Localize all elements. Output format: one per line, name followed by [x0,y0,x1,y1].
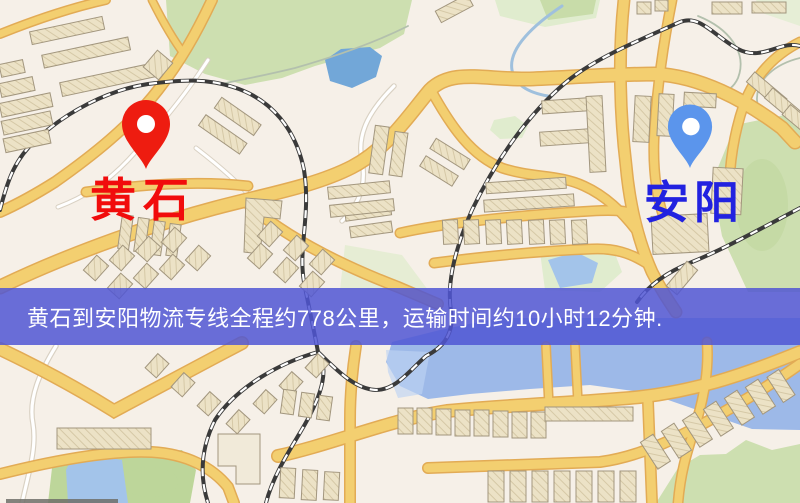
map-viewport[interactable]: 黄石 安阳 黄石到安阳物流专线全程约778公里，运输时间约10小时12分钟. [0,0,800,503]
origin-label: 黄石 [90,177,196,223]
route-info-text: 黄石到安阳物流专线全程约778公里，运输时间约10小时12分钟. [27,301,663,333]
destination-label: 安阳 [644,180,744,225]
map-canvas[interactable] [0,0,800,503]
route-info-banner: 黄石到安阳物流专线全程约778公里，运输时间约10小时12分钟. [0,288,800,345]
map-edge-strip [6,499,118,503]
